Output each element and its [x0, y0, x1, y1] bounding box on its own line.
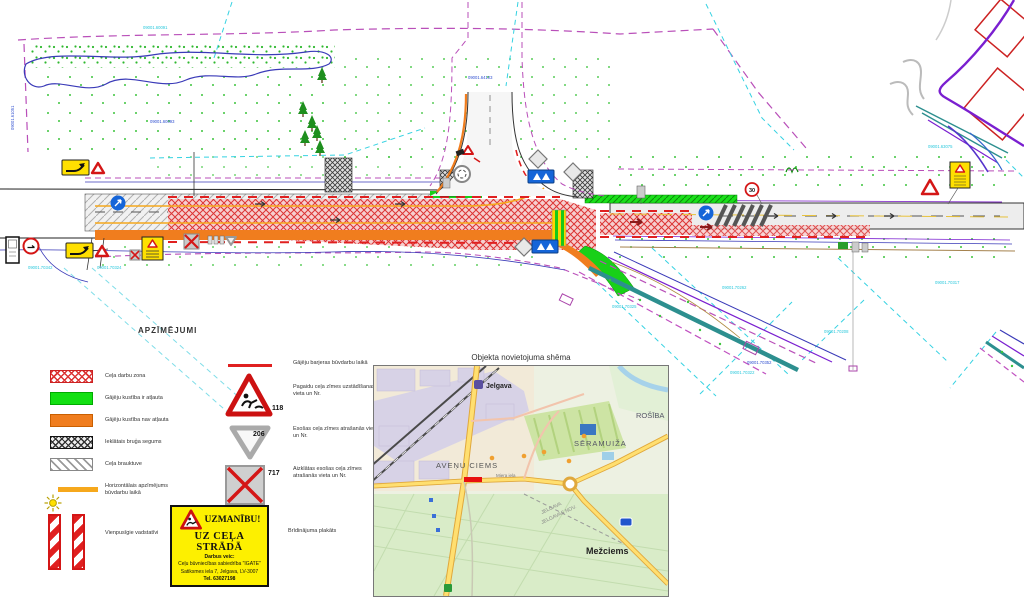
roadworks-sign-icon	[179, 509, 203, 530]
warning-plate: UZMANĪBU! UZ CEĻA STRĀDĀ Darbus veic: Ce…	[170, 505, 269, 587]
map-label-district: Mežciems	[586, 546, 629, 556]
location-map-canvas: Jelgava AVEŅU CIEMS SĒRAMUIŽA ROŠĪBA Mie…	[373, 365, 669, 597]
prohibition-sign	[24, 239, 39, 254]
route-sign	[6, 237, 19, 263]
plate-subtitle: UZ CEĻA STRĀDĀ	[174, 531, 265, 553]
svg-text:09001.70325: 09001.70325	[612, 304, 637, 309]
svg-text:09001.70352: 09001.70352	[747, 360, 772, 365]
legend-label: Horizontālais apzīmējums būvdarbu laikā	[105, 483, 185, 496]
svg-text:09001.60093: 09001.60093	[150, 119, 175, 124]
roadworks-traffic-plan: 30 09001.70342 09001.70324 09001.60091 0…	[0, 0, 1024, 602]
svg-text:09001.70317: 09001.70317	[935, 280, 960, 285]
svg-text:09001.61051: 09001.61051	[10, 105, 15, 130]
legend-label: Gājēju barjeras būvdarbu laikā	[293, 360, 379, 367]
svg-text:09001.63075: 09001.63075	[928, 144, 953, 149]
legend-label: Pagaidu ceļa zīmes uzstādīšanas vieta un…	[293, 384, 379, 397]
swatch-pedestrian-not-allowed	[50, 414, 93, 427]
svg-text:09001.70322: 09001.70322	[730, 370, 755, 375]
swatch-work-zone	[50, 370, 93, 383]
map-label-district: AVEŅU CIEMS	[436, 461, 498, 470]
sun-icon	[44, 494, 62, 512]
bottom-right-road-fragment	[980, 330, 1024, 382]
object-location-marker	[464, 477, 482, 482]
pedestrian-crossing-sign	[528, 170, 554, 183]
legend-label: Esošas ceļa zīmes atrašanās vieta un Nr.	[293, 426, 379, 439]
plate-line: Darbus veic:	[174, 554, 265, 560]
legend: APZĪMĒJUMI Ceļa darbu zona Gājēju kustīb…	[38, 320, 383, 602]
sign-number: 118	[272, 405, 283, 412]
pedestrian-crossing-sign	[532, 240, 558, 253]
plate-line: Tel. 63027198	[174, 576, 265, 582]
roadworks-sign-118-icon	[224, 372, 274, 418]
no-pedestrian-strip	[95, 230, 557, 240]
plate-line: Ceļu būvniecības sabiedrība "IGATE"	[174, 561, 265, 567]
svg-text:09001.70324: 09001.70324	[97, 265, 122, 270]
svg-text:09001.60091: 09001.60091	[143, 25, 168, 30]
map-label-station: Jelgava	[486, 383, 512, 390]
svg-text:30: 30	[749, 188, 755, 194]
lane-shift-board-sign	[62, 160, 104, 175]
covered-sign-717-icon	[224, 464, 266, 506]
legend-label: Aizklātas esošas ceļa zīmes atrašanās vi…	[293, 466, 379, 479]
legend-label: Gājēju kustība ir atļauta	[105, 395, 217, 402]
mandatory-direction-sign	[111, 196, 126, 211]
swatch-barrier-line	[228, 364, 272, 367]
warning-plate-sign	[142, 237, 163, 260]
legend-label: Brīdinājuma plakāts	[288, 528, 348, 535]
location-map: Objekta novietojuma shēma	[373, 353, 669, 597]
legend-label: Vienpusīgie vadstatīvi	[105, 530, 165, 537]
map-label-street: Miera iela	[496, 473, 516, 478]
legend-label: Ceļa brauktuve	[105, 461, 217, 468]
lane-shift-board-sign	[66, 243, 108, 258]
guide-post	[48, 514, 61, 570]
guide-post	[72, 514, 85, 570]
legend-label: Ieklātais bruģa segums	[105, 439, 217, 446]
give-way-sign-206-icon	[228, 424, 272, 460]
sign-number: 206	[253, 431, 265, 438]
swatch-pedestrian-allowed	[50, 392, 93, 405]
swatch-carriageway	[50, 458, 93, 471]
legend-label: Gājēju kustība nav atļauta	[105, 417, 217, 424]
sign-stack	[208, 236, 236, 245]
map-label-district: SĒRAMUIŽA	[574, 439, 627, 448]
legend-label: Ceļa darbu zona	[105, 373, 217, 380]
svg-text:09001.70208: 09001.70208	[824, 329, 849, 334]
swatch-temp-marking	[58, 487, 98, 492]
svg-text:09001.70342: 09001.70342	[28, 265, 53, 270]
sign-number: 717	[268, 470, 280, 477]
covered-sign	[184, 234, 199, 249]
buildings-top-right	[890, 0, 1024, 172]
map-title: Objekta novietojuma shēma	[373, 353, 669, 362]
legend-title: APZĪMĒJUMI	[138, 326, 197, 335]
plate-title: UZMANĪBU!	[205, 515, 261, 525]
mandatory-direction-sign	[699, 206, 714, 221]
svg-text:09001.64103: 09001.64103	[468, 75, 493, 80]
swatch-paving	[50, 436, 93, 449]
warning-plate-sign	[948, 162, 970, 204]
pedestrian-strip	[585, 195, 737, 203]
plate-line: Satiksmes iela 7, Jelgava, LV-3007	[174, 569, 265, 575]
map-label-district: ROŠĪBA	[636, 411, 664, 420]
svg-text:09001.70262: 09001.70262	[722, 285, 747, 290]
covered-sign	[130, 250, 140, 260]
